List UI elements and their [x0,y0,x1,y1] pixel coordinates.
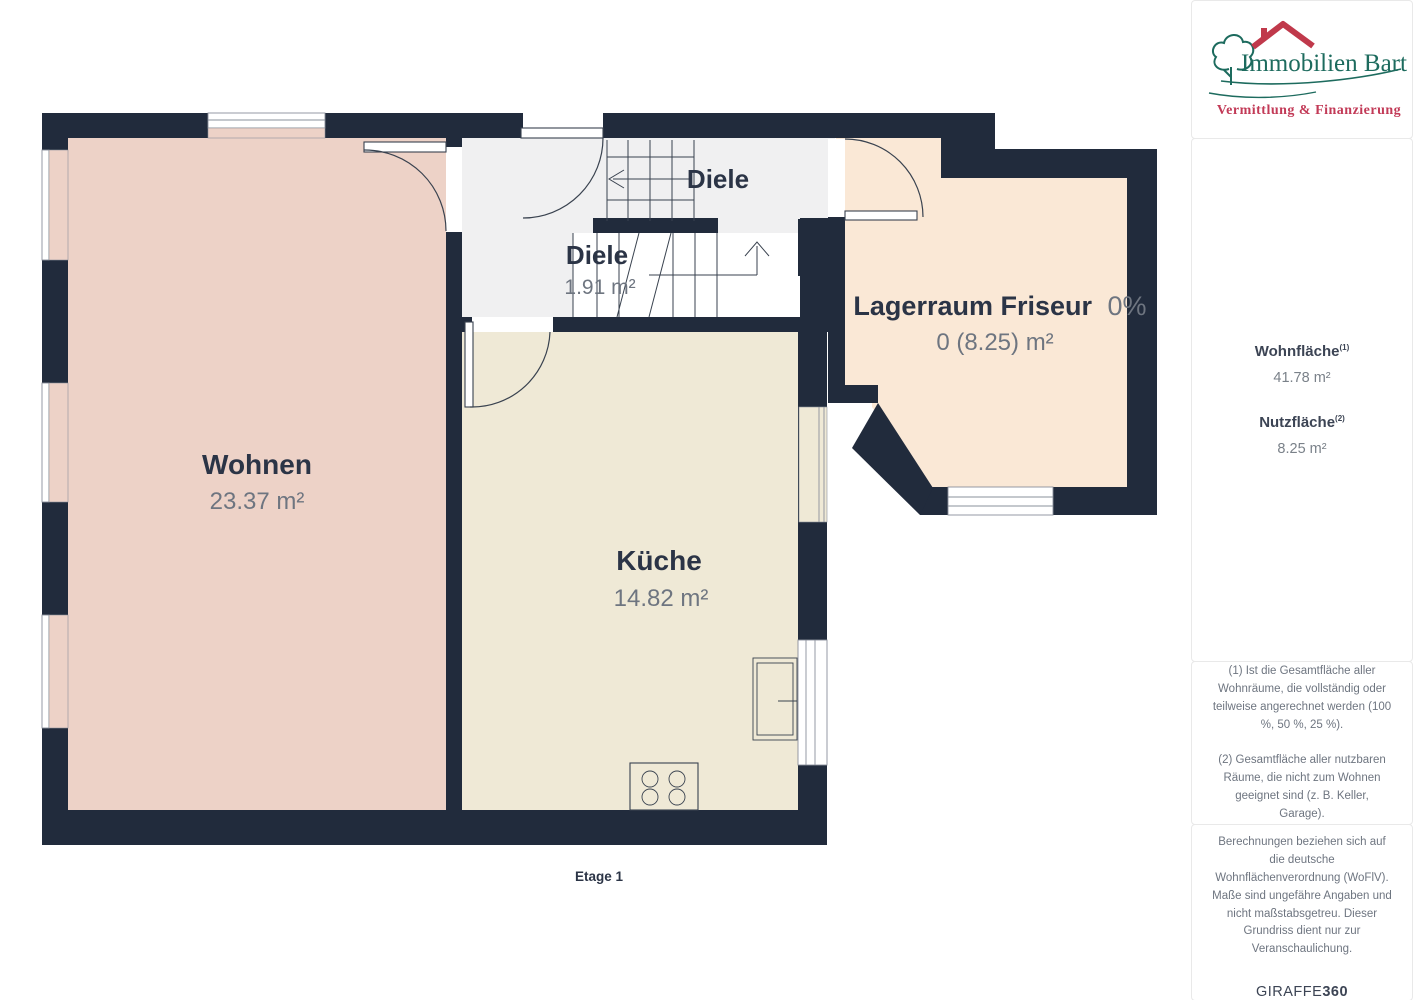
window-left-3 [42,615,68,728]
company-logo: Immobilien Bart Vermittlung & Finanzieru… [1191,9,1413,129]
roof-icon [1253,24,1313,47]
label-diele-upper: Diele [687,164,749,194]
window-left-2 [42,383,68,502]
label-lagerraum-area: 0 (8.25) m² [936,329,1053,356]
window-top [208,113,325,138]
giraffe360-watermark: GIRAFFE360 [1256,984,1348,1000]
metric-label: Nutzfläche(2) [1259,414,1345,431]
footnote-1: (1) Ist die Gesamtfläche aller Wohnräume… [1211,663,1393,734]
window-lagerraum [948,487,1053,515]
logo-box: Immobilien Bart Vermittlung & Finanzieru… [1191,0,1413,139]
metric-value: 8.25 m² [1259,441,1345,457]
logo-ground-swoosh [1209,92,1316,97]
brand-tagline: Vermittlung & Finanzierung [1217,103,1401,118]
footnotes-box: (1) Ist die Gesamtfläche aller Wohnräume… [1191,661,1413,825]
floorplan-page: Wohnen 23.37 m² Küche 14.82 m² Diele Die… [0,0,1414,1000]
metric-nutzflaeche: Nutzfläche(2) 8.25 m² [1259,414,1345,457]
info-sidebar: Immobilien Bart Vermittlung & Finanzieru… [1190,0,1414,1000]
metric-wohnflaeche: Wohnfläche(1) 41.78 m² [1255,343,1350,386]
label-kueche-area: 14.82 m² [614,585,709,612]
footnote-ref: (1) [1339,343,1349,352]
floorplan-drawing: Wohnen 23.37 m² Küche 14.82 m² Diele Die… [0,0,1190,1000]
disclaimer-text: Berechnungen beziehen sich auf die deuts… [1211,834,1393,959]
stove [630,763,698,810]
label-diele-lower: Diele [566,240,628,270]
window-kueche-east-2 [798,640,827,765]
footnote-ref: (2) [1335,414,1345,423]
metrics-box: Wohnfläche(1) 41.78 m² Nutzfläche(2) 8.2… [1191,138,1413,663]
label-wohnen-area: 23.37 m² [210,488,305,515]
label-wohnen: Wohnen [202,449,312,480]
metric-label: Wohnfläche(1) [1255,343,1350,360]
disclaimer-box: Berechnungen beziehen sich auf die deuts… [1191,824,1413,1000]
footnote-2: (2) Gesamtfläche aller nutzbaren Räume, … [1211,752,1393,823]
label-kueche: Küche [616,545,702,576]
label-diele-lower-area: 1.91 m² [564,276,635,299]
floor-label: Etage 1 [575,869,624,884]
metric-value: 41.78 m² [1255,370,1350,386]
window-kueche-east-1 [799,407,827,522]
window-left-1 [42,150,68,260]
